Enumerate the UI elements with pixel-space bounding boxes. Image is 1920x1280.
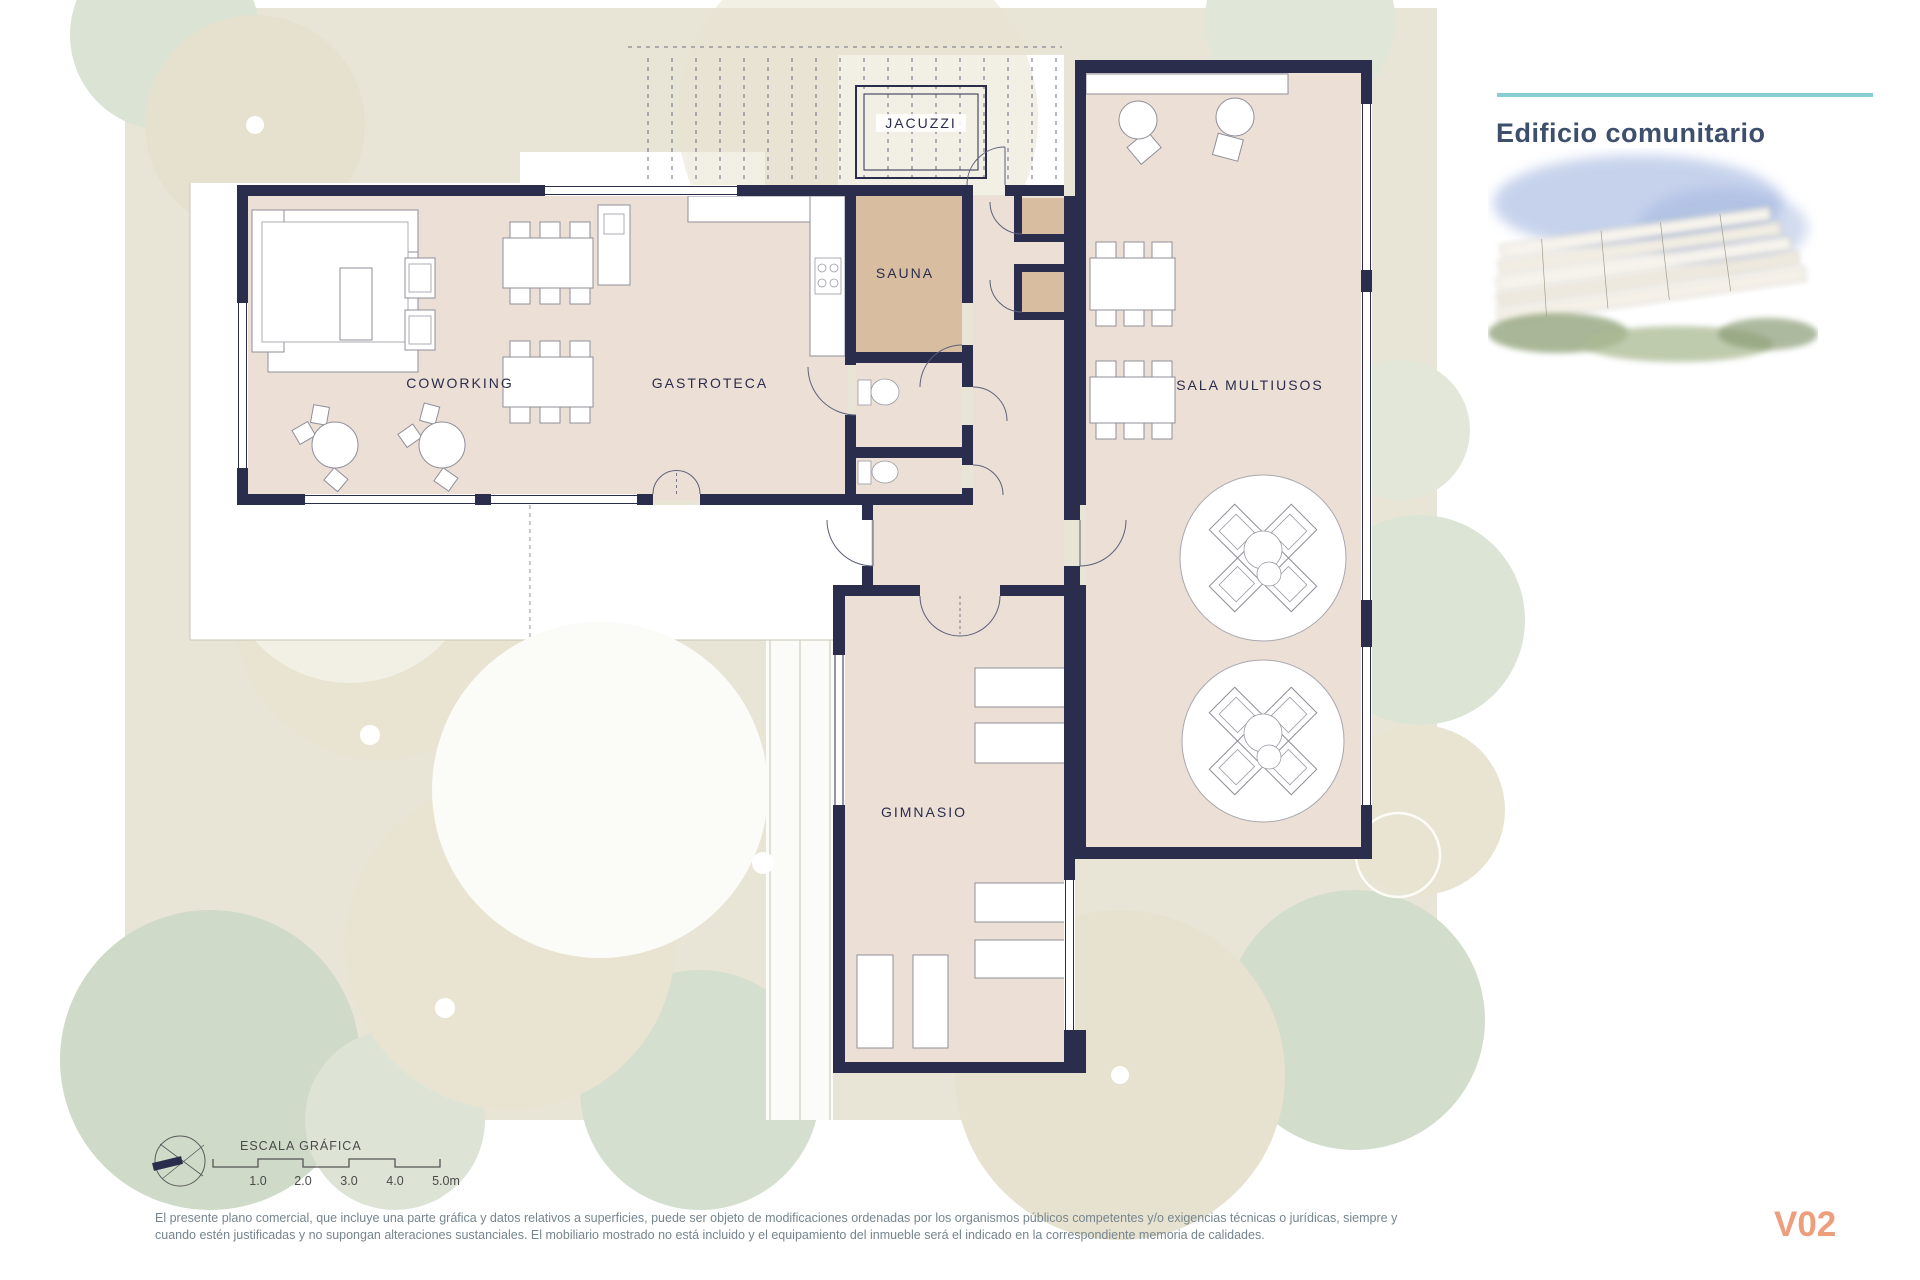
floor-plan-page: JACUZZI <box>0 0 1920 1280</box>
version-label: V02 <box>1774 1205 1836 1245</box>
disclaimer: El presente plano comercial, que incluye… <box>155 1210 1635 1244</box>
scale-bar-title: ESCALA GRÁFICA <box>240 1138 362 1153</box>
divider-line <box>1497 93 1873 97</box>
scale-tick-3: 3.0 <box>340 1174 357 1188</box>
room-label-sauna: SAUNA <box>876 265 934 281</box>
page-title: Edificio comunitario <box>1496 118 1766 149</box>
disclaimer-line-2: cuando estén justificadas y no supongan … <box>155 1227 1635 1244</box>
room-label-coworking: COWORKING <box>406 375 513 391</box>
disclaimer-line-1: El presente plano comercial, que incluye… <box>155 1210 1635 1227</box>
pergola-circle <box>432 622 768 958</box>
scale-tick-4: 4.0 <box>386 1174 403 1188</box>
room-label-gastroteca: GASTROTECA <box>652 375 768 391</box>
building-rendering <box>1488 148 1818 368</box>
scale-tick-5: 5.0m <box>432 1174 460 1188</box>
scale-tick-2: 2.0 <box>294 1174 311 1188</box>
scale-tick-1: 1.0 <box>249 1174 266 1188</box>
lounge-circle-1 <box>1180 475 1346 641</box>
room-label-gimnasio: GIMNASIO <box>881 804 967 820</box>
lounge-circle-2 <box>1182 660 1344 822</box>
room-label-sala-multiusos: SALA MULTIUSOS <box>1176 377 1324 393</box>
room-label-jacuzzi: JACUZZI <box>885 115 957 131</box>
